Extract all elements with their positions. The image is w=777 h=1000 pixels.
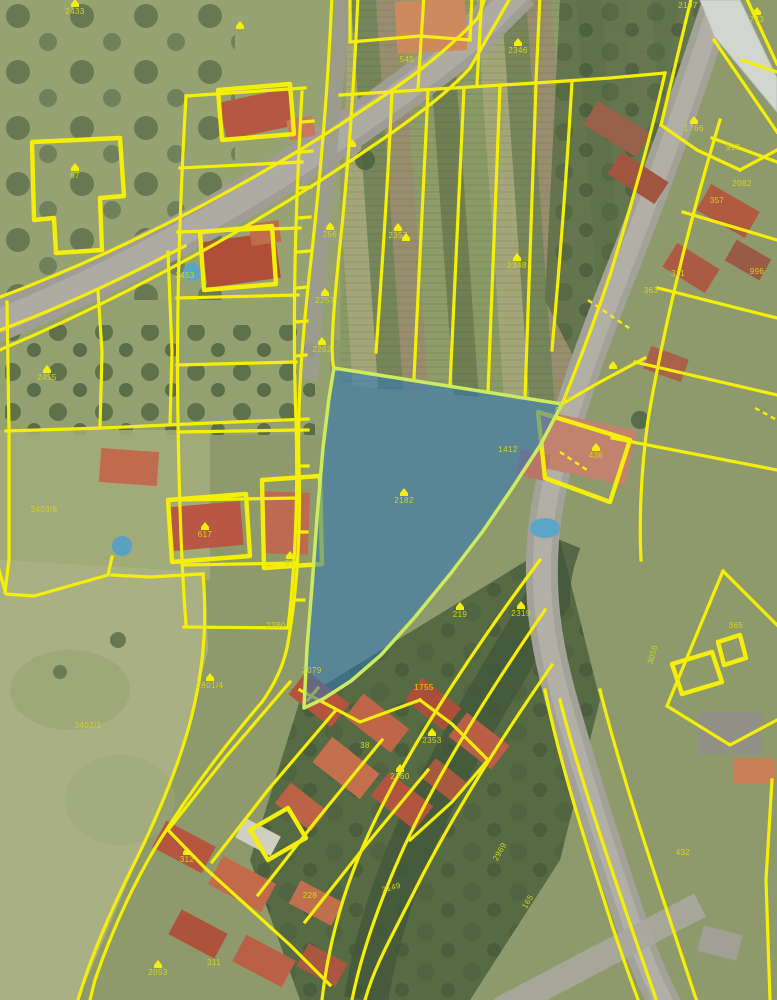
parcel-label: 365 bbox=[729, 621, 744, 630]
parcel-label: 219 bbox=[453, 610, 468, 619]
parcel-label: 432 bbox=[676, 848, 691, 857]
parcel-label: 2453 bbox=[175, 271, 195, 280]
parcel-label: 2348 bbox=[507, 261, 527, 270]
parcel-label: 617 bbox=[198, 530, 213, 539]
cadastral-map-svg[interactable]: 2433545234621977431766997672562357245323… bbox=[0, 0, 777, 1000]
small-pool bbox=[112, 536, 132, 556]
swimming-pool bbox=[530, 518, 560, 538]
parcel-label: 1412 bbox=[498, 445, 518, 454]
parcel-label: 436 bbox=[589, 451, 604, 460]
map-viewport[interactable]: 2433545234621977431766997672562357245323… bbox=[0, 0, 777, 1000]
parcel-label: 743 bbox=[750, 15, 765, 24]
parcel-label: 311 bbox=[671, 269, 685, 278]
parcel-label: 2079 bbox=[302, 666, 322, 675]
parcel-label: 256 bbox=[323, 230, 338, 239]
parcel-label: 312 bbox=[180, 855, 195, 864]
parcel-label: 2360 bbox=[390, 772, 410, 781]
parcel-label: 67 bbox=[70, 171, 80, 180]
parcel-label: 38 bbox=[360, 741, 370, 750]
parcel-label: 2257 bbox=[315, 296, 335, 305]
parcel-label: 3402/1 bbox=[75, 721, 102, 730]
parcel-label: 2319 bbox=[511, 609, 531, 618]
parcel-label: 3403/8 bbox=[31, 505, 58, 514]
parcel-label: 2433 bbox=[65, 7, 85, 16]
parcel-label: 2601/4 bbox=[197, 681, 224, 690]
parcel-label: 996 bbox=[750, 267, 765, 276]
parcel-label: 2197 bbox=[678, 1, 698, 10]
parcel-label: 2262 bbox=[312, 345, 332, 354]
parcel-label: 1766 bbox=[684, 124, 704, 133]
parcel-label: 2455 bbox=[37, 373, 57, 382]
parcel-label: 2082 bbox=[732, 179, 752, 188]
parcel-label: 57 bbox=[285, 559, 295, 568]
parcel-label: 228 bbox=[303, 891, 318, 900]
parcel-label: 1755 bbox=[414, 683, 434, 692]
parcel-label: 2053 bbox=[148, 968, 168, 977]
parcel-label: 2280 bbox=[266, 621, 286, 630]
highlighted-parcel-label: 2182 bbox=[394, 496, 414, 505]
parcel-label: 545 bbox=[400, 55, 415, 64]
parcel-label: 363 bbox=[644, 286, 659, 295]
parcel-label: 357 bbox=[710, 196, 725, 205]
parcel-label: 997 bbox=[726, 143, 741, 152]
parcel-label: 2346 bbox=[508, 46, 528, 55]
parcel-label: 311 bbox=[207, 958, 221, 967]
parcel-label: 2353 bbox=[422, 736, 442, 745]
